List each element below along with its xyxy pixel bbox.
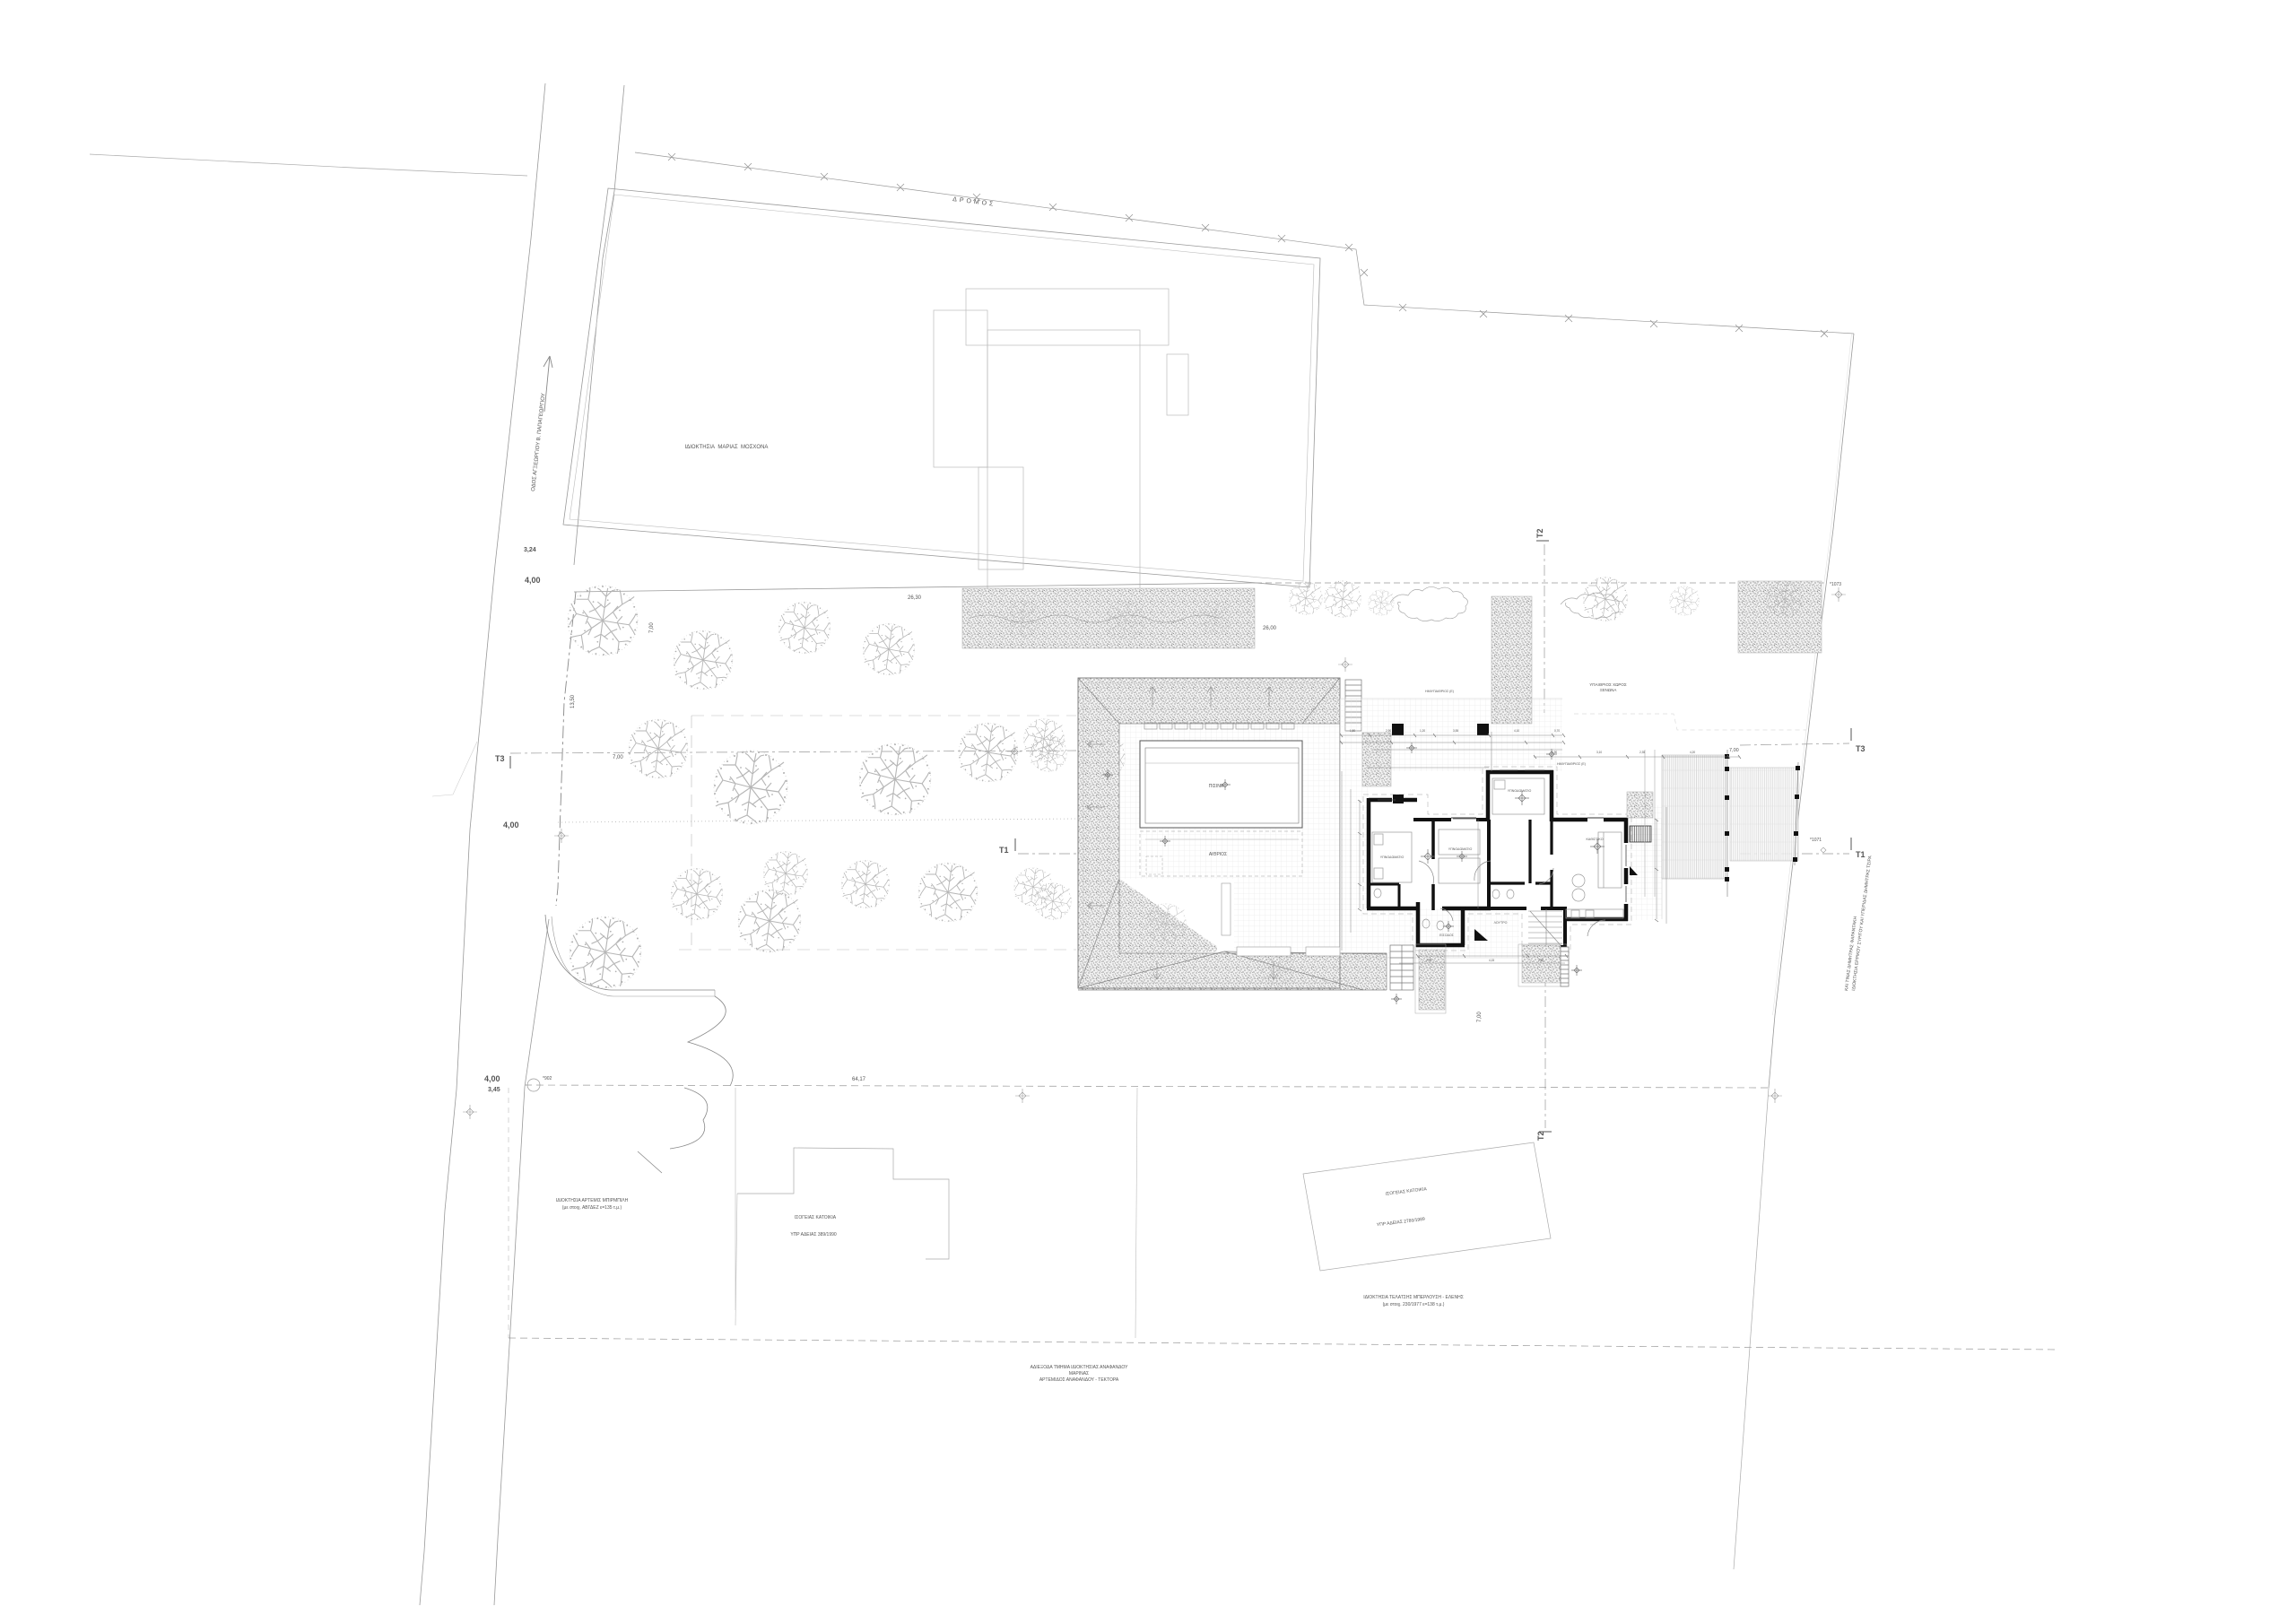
svg-text:3,10: 3,10 bbox=[1596, 751, 1602, 754]
svg-text:ΜΑΡΙΝΑΣ: ΜΑΡΙΝΑΣ bbox=[1069, 1371, 1089, 1376]
svg-text:*1073: *1073 bbox=[1830, 582, 1841, 587]
svg-text:4,20: 4,20 bbox=[1690, 751, 1695, 754]
svg-text:T1: T1 bbox=[1856, 850, 1865, 859]
svg-text:13,50: 13,50 bbox=[570, 694, 576, 708]
svg-text:1,90: 1,90 bbox=[1552, 751, 1557, 754]
svg-text:26,30: 26,30 bbox=[908, 595, 922, 601]
svg-text:T3: T3 bbox=[495, 754, 505, 763]
svg-text:T2: T2 bbox=[1536, 1131, 1545, 1141]
svg-text:ΕΙΣΟΔΟΣ: ΕΙΣΟΔΟΣ bbox=[1439, 934, 1454, 937]
svg-text:7,00: 7,00 bbox=[1477, 1012, 1483, 1022]
svg-text:4,00: 4,00 bbox=[525, 576, 541, 585]
svg-text:4,00: 4,00 bbox=[484, 1074, 500, 1083]
svg-text:2,95: 2,95 bbox=[1426, 959, 1431, 962]
svg-text:64,17: 64,17 bbox=[852, 1077, 866, 1082]
svg-text:ΗΜΙΥΠΑΙΘΡΙΟΣ (Ε): ΗΜΙΥΠΑΙΘΡΙΟΣ (Ε) bbox=[1557, 762, 1586, 766]
svg-text:(με στοιχ. 230/1977 ε=138 τ.μ.: (με στοιχ. 230/1977 ε=138 τ.μ.) bbox=[1383, 1302, 1445, 1307]
svg-text:ΥΠΝΟΔΩΜΑΤΙΟ: ΥΠΝΟΔΩΜΑΤΙΟ bbox=[1448, 847, 1473, 851]
svg-text:7,00: 7,00 bbox=[1729, 748, 1739, 753]
svg-text:(με στοιχ. ΑΒΓΔΕΖ ε=135 τ.μ.): (με στοιχ. ΑΒΓΔΕΖ ε=135 τ.μ.) bbox=[562, 1205, 622, 1211]
svg-text:7,00: 7,00 bbox=[649, 622, 655, 633]
svg-text:ΑΙΘΡΙΟΣ: ΑΙΘΡΙΟΣ bbox=[1209, 852, 1227, 857]
svg-text:T3: T3 bbox=[1856, 744, 1865, 753]
svg-text:*1071: *1071 bbox=[1810, 838, 1822, 843]
svg-text:ΑΡΤΕΜΙΔΟΣ ΑΝΑΦΑΝΔΟΥ - ΤΕΚΤΟΡΑ: ΑΡΤΕΜΙΔΟΣ ΑΝΑΦΑΝΔΟΥ - ΤΕΚΤΟΡΑ bbox=[1039, 1377, 1119, 1383]
svg-text:1,20: 1,20 bbox=[1420, 729, 1425, 733]
svg-text:*902: *902 bbox=[543, 1076, 552, 1081]
svg-text:ΥΠΡ ΑΔΕΙΑΣ 389/1990: ΥΠΡ ΑΔΕΙΑΣ 389/1990 bbox=[790, 1232, 837, 1238]
svg-text:T1: T1 bbox=[999, 846, 1009, 855]
svg-text:ΙΔΙΟΚΤΗΣΙΑ ΜΑΡΙΑΣ ΜΟΣΧΟΝΑ: ΙΔΙΟΚΤΗΣΙΑ ΜΑΡΙΑΣ ΜΟΣΧΟΝΑ bbox=[685, 445, 769, 450]
svg-text:ΙΔΙΟΚΤΗΣΙΑ ΤΕΛΑΤΣΗΣ ΜΠΕΡΛΟΥΣΗ: ΙΔΙΟΚΤΗΣΙΑ ΤΕΛΑΤΣΗΣ ΜΠΕΡΛΟΥΣΗ - ΕΛΕΝΗΣ bbox=[1363, 1295, 1464, 1300]
svg-text:ΑΔΙΕΞΟΔΑ ΤΜΗΜΑ ΙΔΙΟΚΤΗΣΙΑΣ ΑΝΑ: ΑΔΙΕΞΟΔΑ ΤΜΗΜΑ ΙΔΙΟΚΤΗΣΙΑΣ ΑΝΑΦΑΝΔΟΥ bbox=[1031, 1365, 1128, 1370]
svg-text:ΥΠΝΟΔΩΜΑΤΙΟ: ΥΠΝΟΔΩΜΑΤΙΟ bbox=[1380, 855, 1405, 859]
svg-text:3,55: 3,55 bbox=[1453, 729, 1458, 733]
svg-text:2,35: 2,35 bbox=[1639, 751, 1645, 754]
svg-text:0,70: 0,70 bbox=[1554, 729, 1560, 733]
svg-text:2,90: 2,90 bbox=[1386, 729, 1391, 733]
svg-text:4,10: 4,10 bbox=[1514, 729, 1519, 733]
svg-text:ΙΣΟΓΕΙΑΣ ΚΑΤΟΙΚΙΑ: ΙΣΟΓΕΙΑΣ ΚΑΤΟΙΚΙΑ bbox=[795, 1215, 837, 1220]
svg-text:1,50: 1,50 bbox=[1350, 729, 1355, 733]
svg-text:ΞΕΝΩΝΑ: ΞΕΝΩΝΑ bbox=[1600, 688, 1617, 692]
svg-text:T2: T2 bbox=[1535, 528, 1544, 538]
svg-text:ΙΔΙΟΚΤΗΣΙΑ ΑΡΤΕΜΙΣ ΜΠΙΡΜΠΙΛΗ: ΙΔΙΟΚΤΗΣΙΑ ΑΡΤΕΜΙΣ ΜΠΙΡΜΠΙΛΗ bbox=[556, 1198, 629, 1203]
svg-text:3,24: 3,24 bbox=[524, 547, 536, 553]
svg-text:4,15: 4,15 bbox=[1489, 959, 1494, 962]
svg-text:ΚΑΘΙΣΤΙΚΟ: ΚΑΘΙΣΤΙΚΟ bbox=[1586, 838, 1603, 841]
svg-text:ΛΟΥΤΡΟ: ΛΟΥΤΡΟ bbox=[1494, 921, 1508, 925]
svg-text:4,00: 4,00 bbox=[503, 821, 519, 829]
svg-text:ΥΠΑΙΘΡΙΟΣ ΧΩΡΟΣ: ΥΠΑΙΘΡΙΟΣ ΧΩΡΟΣ bbox=[1589, 682, 1627, 687]
svg-text:3,45: 3,45 bbox=[488, 1087, 500, 1093]
svg-text:2,50: 2,50 bbox=[1538, 959, 1544, 962]
svg-text:26,00: 26,00 bbox=[1263, 626, 1277, 631]
svg-text:ΗΜΙΥΠΑΙΘΡΙΟΣ (Ε): ΗΜΙΥΠΑΙΘΡΙΟΣ (Ε) bbox=[1425, 690, 1454, 693]
svg-text:7,00: 7,00 bbox=[613, 755, 623, 760]
svg-text:ΥΠΝΟΔΩΜΑΤΙΟ: ΥΠΝΟΔΩΜΑΤΙΟ bbox=[1508, 789, 1532, 793]
